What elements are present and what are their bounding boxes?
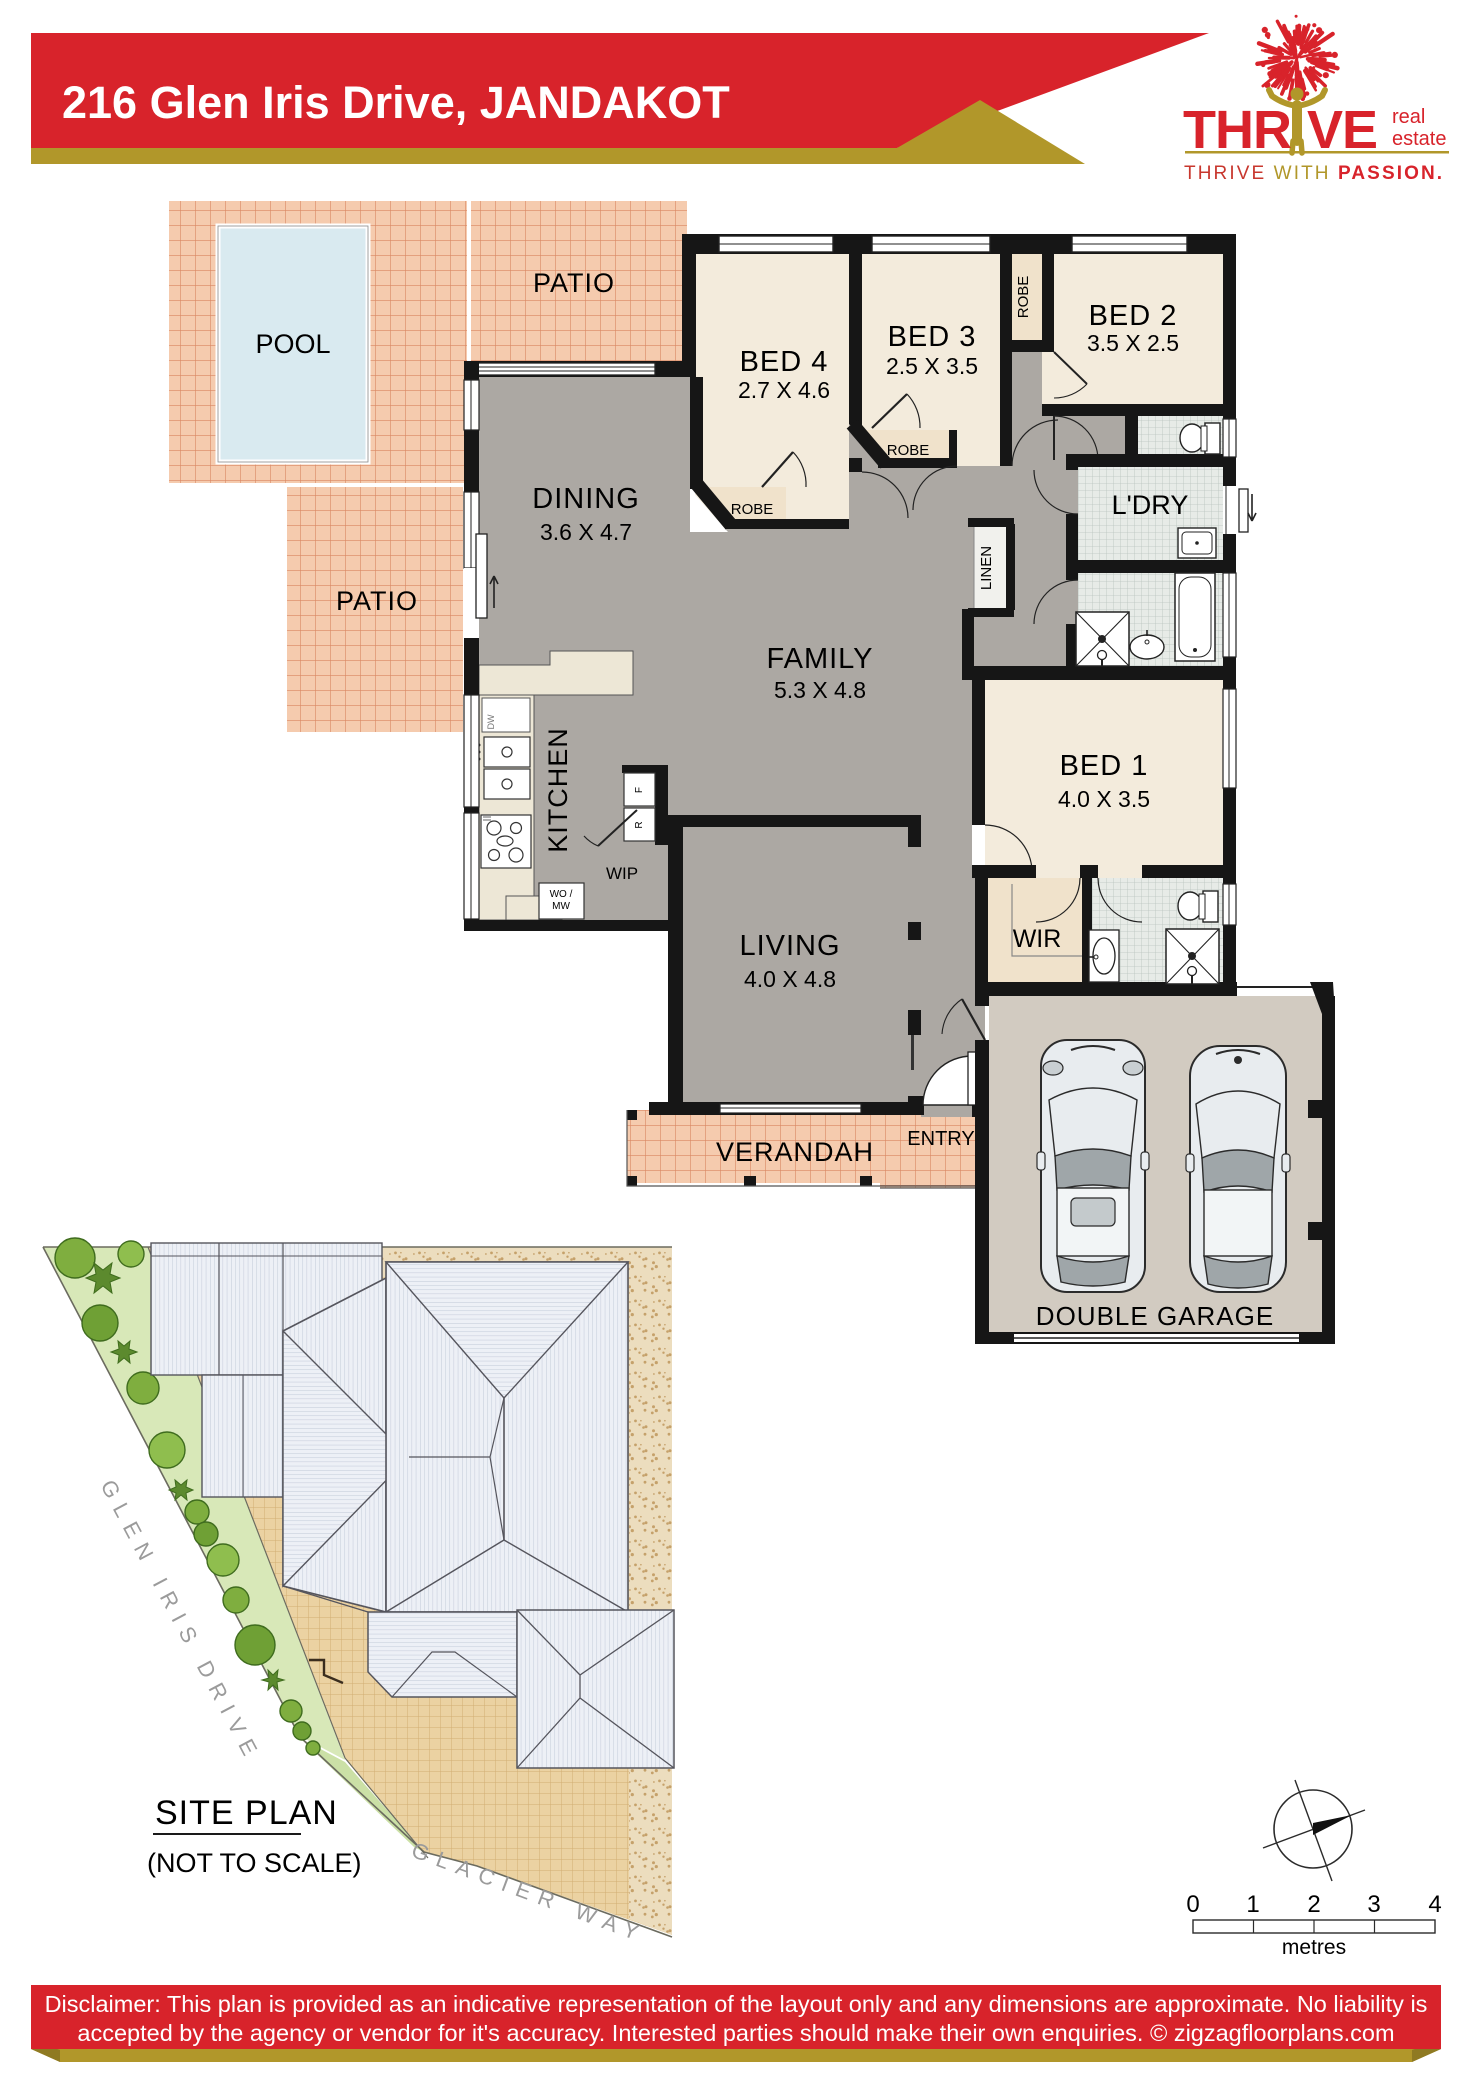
svg-text:PATIO: PATIO: [336, 586, 418, 616]
svg-text:216 Glen Iris Drive, JANDAKOT: 216 Glen Iris Drive, JANDAKOT: [62, 77, 730, 128]
svg-text:3.6 X 4.7: 3.6 X 4.7: [540, 519, 632, 545]
svg-text:WIP: WIP: [606, 864, 638, 883]
svg-text:R: R: [634, 821, 645, 828]
svg-text:THRIVE WITH PASSION.: THRIVE WITH PASSION.: [1184, 163, 1444, 184]
svg-text:WIR: WIR: [1013, 925, 1062, 953]
svg-text:BED 4: BED 4: [740, 346, 829, 378]
svg-text:BED 2: BED 2: [1089, 300, 1178, 332]
svg-text:POOL: POOL: [255, 329, 330, 359]
svg-text:PATIO: PATIO: [533, 268, 615, 298]
svg-text:L'DRY: L'DRY: [1112, 490, 1189, 520]
svg-text:(NOT TO SCALE): (NOT TO SCALE): [147, 1848, 362, 1878]
svg-text:DW: DW: [486, 714, 496, 729]
svg-text:BED 3: BED 3: [888, 321, 977, 353]
svg-text:4.0 X 4.8: 4.0 X 4.8: [744, 966, 836, 992]
svg-text:2: 2: [1307, 1891, 1320, 1918]
svg-text:4.0 X 3.5: 4.0 X 3.5: [1058, 786, 1150, 812]
svg-text:3.5 X 2.5: 3.5 X 2.5: [1087, 330, 1179, 356]
svg-text:1: 1: [1246, 1891, 1259, 1918]
svg-text:estate: estate: [1392, 128, 1446, 150]
svg-text:2.7 X 4.6: 2.7 X 4.6: [738, 377, 830, 403]
svg-text:3: 3: [1367, 1891, 1380, 1918]
svg-text:ROBE: ROBE: [887, 442, 930, 459]
svg-text:MW: MW: [552, 901, 570, 912]
svg-text:4: 4: [1428, 1891, 1441, 1918]
svg-text:LIVING: LIVING: [739, 930, 840, 962]
svg-text:DINING: DINING: [532, 483, 640, 515]
svg-text:FAMILY: FAMILY: [767, 643, 874, 675]
svg-text:VERANDAH: VERANDAH: [716, 1137, 874, 1167]
svg-text:DOUBLE GARAGE: DOUBLE GARAGE: [1036, 1301, 1274, 1331]
svg-text:ROBE: ROBE: [1015, 276, 1032, 319]
svg-text:SITE PLAN: SITE PLAN: [155, 1794, 338, 1832]
svg-text:LINEN: LINEN: [978, 546, 995, 590]
svg-text:2.5 X 3.5: 2.5 X 3.5: [886, 353, 978, 379]
svg-text:0: 0: [1186, 1891, 1199, 1918]
svg-text:F: F: [634, 787, 645, 793]
svg-text:5.3 X 4.8: 5.3 X 4.8: [774, 677, 866, 703]
svg-text:WO /: WO /: [550, 889, 573, 900]
svg-text:ROBE: ROBE: [731, 501, 774, 518]
svg-text:metres: metres: [1282, 1936, 1346, 1959]
svg-text:BED 1: BED 1: [1060, 750, 1149, 782]
svg-text:accepted by the agency or vend: accepted by the agency or vendor for it'…: [77, 2020, 1394, 2046]
svg-text:real: real: [1392, 106, 1425, 128]
svg-text:Disclaimer: This plan is provi: Disclaimer: This plan is provided as an …: [45, 1991, 1428, 2017]
svg-text:KITCHEN: KITCHEN: [543, 727, 573, 853]
svg-text:ENTRY: ENTRY: [907, 1128, 974, 1150]
